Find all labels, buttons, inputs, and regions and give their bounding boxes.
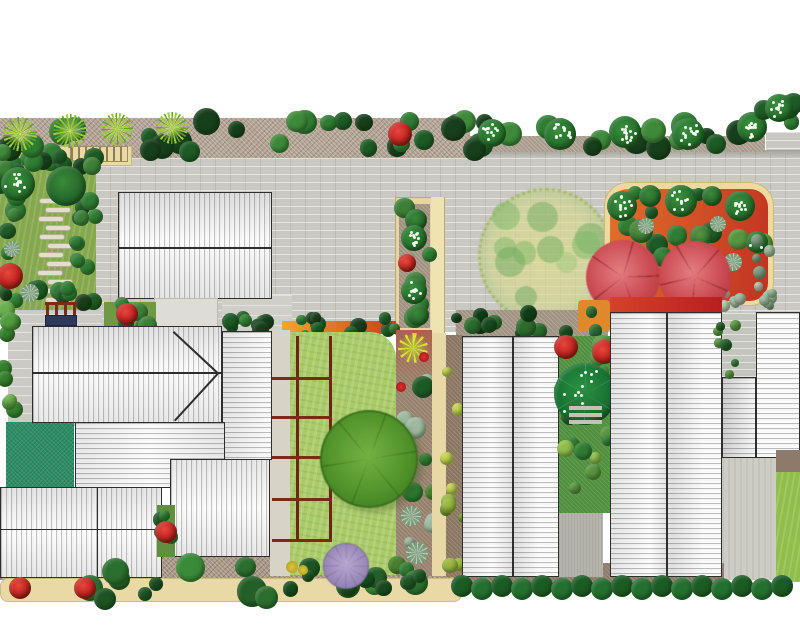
agave-plant xyxy=(638,218,654,234)
pergola-beam xyxy=(272,416,332,419)
scalloped-hedge-south xyxy=(631,578,653,600)
roof-seam xyxy=(666,312,668,577)
flowering-tree xyxy=(1,167,35,201)
hedge-strip xyxy=(222,313,239,330)
canopy-foliage-ring xyxy=(492,202,520,230)
bed-edge-plants xyxy=(764,245,776,257)
shrub xyxy=(407,304,429,326)
stepping-stones xyxy=(37,270,63,276)
boundary-hedge-north xyxy=(355,114,372,131)
roof-garage xyxy=(118,192,272,299)
garden-step xyxy=(569,413,602,417)
yellow-accent-plant xyxy=(298,565,308,575)
specimen-tree xyxy=(320,410,418,508)
scalloped-hedge-south xyxy=(511,578,533,600)
large-bush xyxy=(46,166,86,206)
scalloped-hedge-south xyxy=(751,578,773,600)
mulch-corner xyxy=(776,450,800,472)
stepping-stones xyxy=(38,252,64,258)
scalloped-hedge-south xyxy=(671,578,693,600)
red-flower-bush xyxy=(398,254,416,272)
tan-border-bottom xyxy=(0,578,462,602)
hedge-row xyxy=(379,312,391,324)
teal-lawn-panel xyxy=(6,422,74,489)
red-flower-bush xyxy=(155,521,177,543)
roof-building-d xyxy=(722,377,756,458)
garden-step xyxy=(569,420,602,424)
scalloped-hedge-south xyxy=(471,578,493,600)
boundary-hedge-south xyxy=(235,557,256,578)
boundary-hedge-south-underbrush xyxy=(283,581,299,597)
red-flower-bush xyxy=(554,335,578,359)
stepping-stones xyxy=(39,234,65,240)
planter-path xyxy=(431,197,444,335)
shrub xyxy=(639,185,661,207)
canopy-foliage-ring xyxy=(527,202,557,232)
purple-canopy-bush xyxy=(323,543,369,589)
boundary-hedge-north xyxy=(320,115,337,132)
roof-house-west-wing xyxy=(0,487,162,578)
roof-house-east-wing xyxy=(222,331,272,460)
red-flower-bush xyxy=(74,577,96,599)
palm-plant xyxy=(53,114,87,148)
flowering-tree xyxy=(478,119,506,147)
pergola-bench-beam xyxy=(45,302,77,305)
boundary-hedge-north xyxy=(140,139,162,161)
boundary-hedge-north xyxy=(228,121,245,138)
courtyard-shrubs xyxy=(569,482,581,494)
agave-plant xyxy=(401,506,421,526)
palm-plant xyxy=(156,112,188,144)
roof-house-main xyxy=(32,326,222,423)
scalloped-hedge-south xyxy=(711,578,733,600)
boundary-hedge-north xyxy=(360,139,378,157)
concrete-patch xyxy=(559,513,603,577)
pergola-beam xyxy=(272,498,332,501)
flowering-shrub xyxy=(401,278,427,304)
flowering-tree xyxy=(672,118,704,150)
roof-seam xyxy=(97,487,98,578)
garden-hedge-right xyxy=(83,157,101,175)
scalloped-hedge-south xyxy=(551,578,573,600)
hedge-row xyxy=(481,317,497,333)
garden-hedge-right xyxy=(88,209,103,224)
stepping-stones xyxy=(46,261,72,267)
yellow-accent-plant xyxy=(286,561,298,573)
red-flower-bush xyxy=(388,122,412,146)
stepping-stones xyxy=(38,216,64,222)
climbing-vine xyxy=(720,339,732,351)
boundary-hedge-north xyxy=(286,111,307,132)
roof-seam xyxy=(512,336,514,577)
landscape-plan xyxy=(0,0,800,640)
agave-plant xyxy=(406,542,428,564)
garden-step xyxy=(569,406,602,410)
groundcover-plants xyxy=(446,483,457,494)
bed-edge-plants xyxy=(754,282,762,290)
hedge-row xyxy=(586,306,597,317)
palm-plant xyxy=(101,113,133,145)
flowering-tree xyxy=(665,185,697,217)
red-accent xyxy=(419,352,429,362)
bench-seat xyxy=(45,315,77,326)
garden-hedge-bottom xyxy=(0,288,12,300)
palm-plant xyxy=(3,117,37,151)
pavers-southeast xyxy=(722,456,778,580)
garden-hedge-right xyxy=(71,254,84,267)
garden-hedge-left xyxy=(0,223,16,239)
flowering-tree xyxy=(609,116,641,148)
garden-hedge-bottom xyxy=(60,281,75,296)
agave-plant xyxy=(21,284,39,302)
climbing-vine xyxy=(725,370,733,378)
bed-edge-plants xyxy=(753,266,766,279)
boundary-hedge-north xyxy=(414,130,434,150)
scalloped-hedge-south xyxy=(491,575,513,597)
bed-edge-plants xyxy=(751,234,763,246)
flowering-tree xyxy=(765,94,793,122)
canopy-foliage-ring xyxy=(495,247,525,277)
boundary-hedge-south xyxy=(255,586,278,609)
grass-strip-east xyxy=(776,470,800,582)
scalloped-hedge-south xyxy=(591,578,613,600)
hedge-row xyxy=(296,315,307,326)
boundary-hedge-north xyxy=(179,141,200,162)
red-accent xyxy=(396,382,406,392)
roof-building-c xyxy=(756,312,800,458)
scalloped-hedge-south xyxy=(771,575,793,597)
stepping-stones xyxy=(45,207,71,213)
scalloped-hedge-south xyxy=(731,575,753,597)
boundary-hedge-south xyxy=(102,558,130,586)
canopy-foliage-ring xyxy=(556,252,577,273)
scalloped-hedge-south xyxy=(451,575,473,597)
hedge-west-edge xyxy=(0,312,18,330)
flowering-tree xyxy=(725,191,755,221)
roof-seam xyxy=(0,529,162,530)
flowering-shrub xyxy=(401,225,427,251)
red-flower-bush xyxy=(116,303,138,325)
roof-building-a xyxy=(462,336,559,577)
pocket-shrubs xyxy=(159,510,170,521)
pergola-beam xyxy=(272,539,332,542)
scalloped-hedge-south xyxy=(691,575,713,597)
roof-ridge-line xyxy=(32,372,222,374)
garden-hedge-right xyxy=(74,210,89,225)
groundcover-plants xyxy=(440,452,452,464)
climbing-vine xyxy=(716,322,725,331)
flowering-tree xyxy=(544,118,576,150)
landscape-plan-canvas xyxy=(0,0,800,640)
flowering-tree xyxy=(607,191,637,221)
scalloped-hedge-south xyxy=(571,575,593,597)
courtyard-shrubs xyxy=(590,452,601,463)
courtyard-shrubs xyxy=(574,442,592,460)
shrub xyxy=(702,186,722,206)
red-flower-bush xyxy=(9,577,31,599)
hedge-row xyxy=(464,317,481,334)
agave-plant xyxy=(710,216,726,232)
scalloped-hedge-south xyxy=(611,575,633,597)
stepping-stones xyxy=(45,225,71,231)
boundary-hedge-south xyxy=(94,588,116,610)
boundary-hedge-north xyxy=(441,116,466,141)
scalloped-hedge-south xyxy=(651,575,673,597)
pergola-rail xyxy=(296,336,299,541)
agave-plant xyxy=(4,241,20,257)
border-bed-shrubs xyxy=(412,376,434,398)
pergola-beam xyxy=(272,377,332,380)
roof-house-lower-wing xyxy=(170,459,270,557)
roof-ridge-line xyxy=(118,247,272,249)
scalloped-hedge-south xyxy=(531,575,553,597)
climbing-vine xyxy=(730,320,741,331)
groundcover-plants xyxy=(442,498,457,513)
